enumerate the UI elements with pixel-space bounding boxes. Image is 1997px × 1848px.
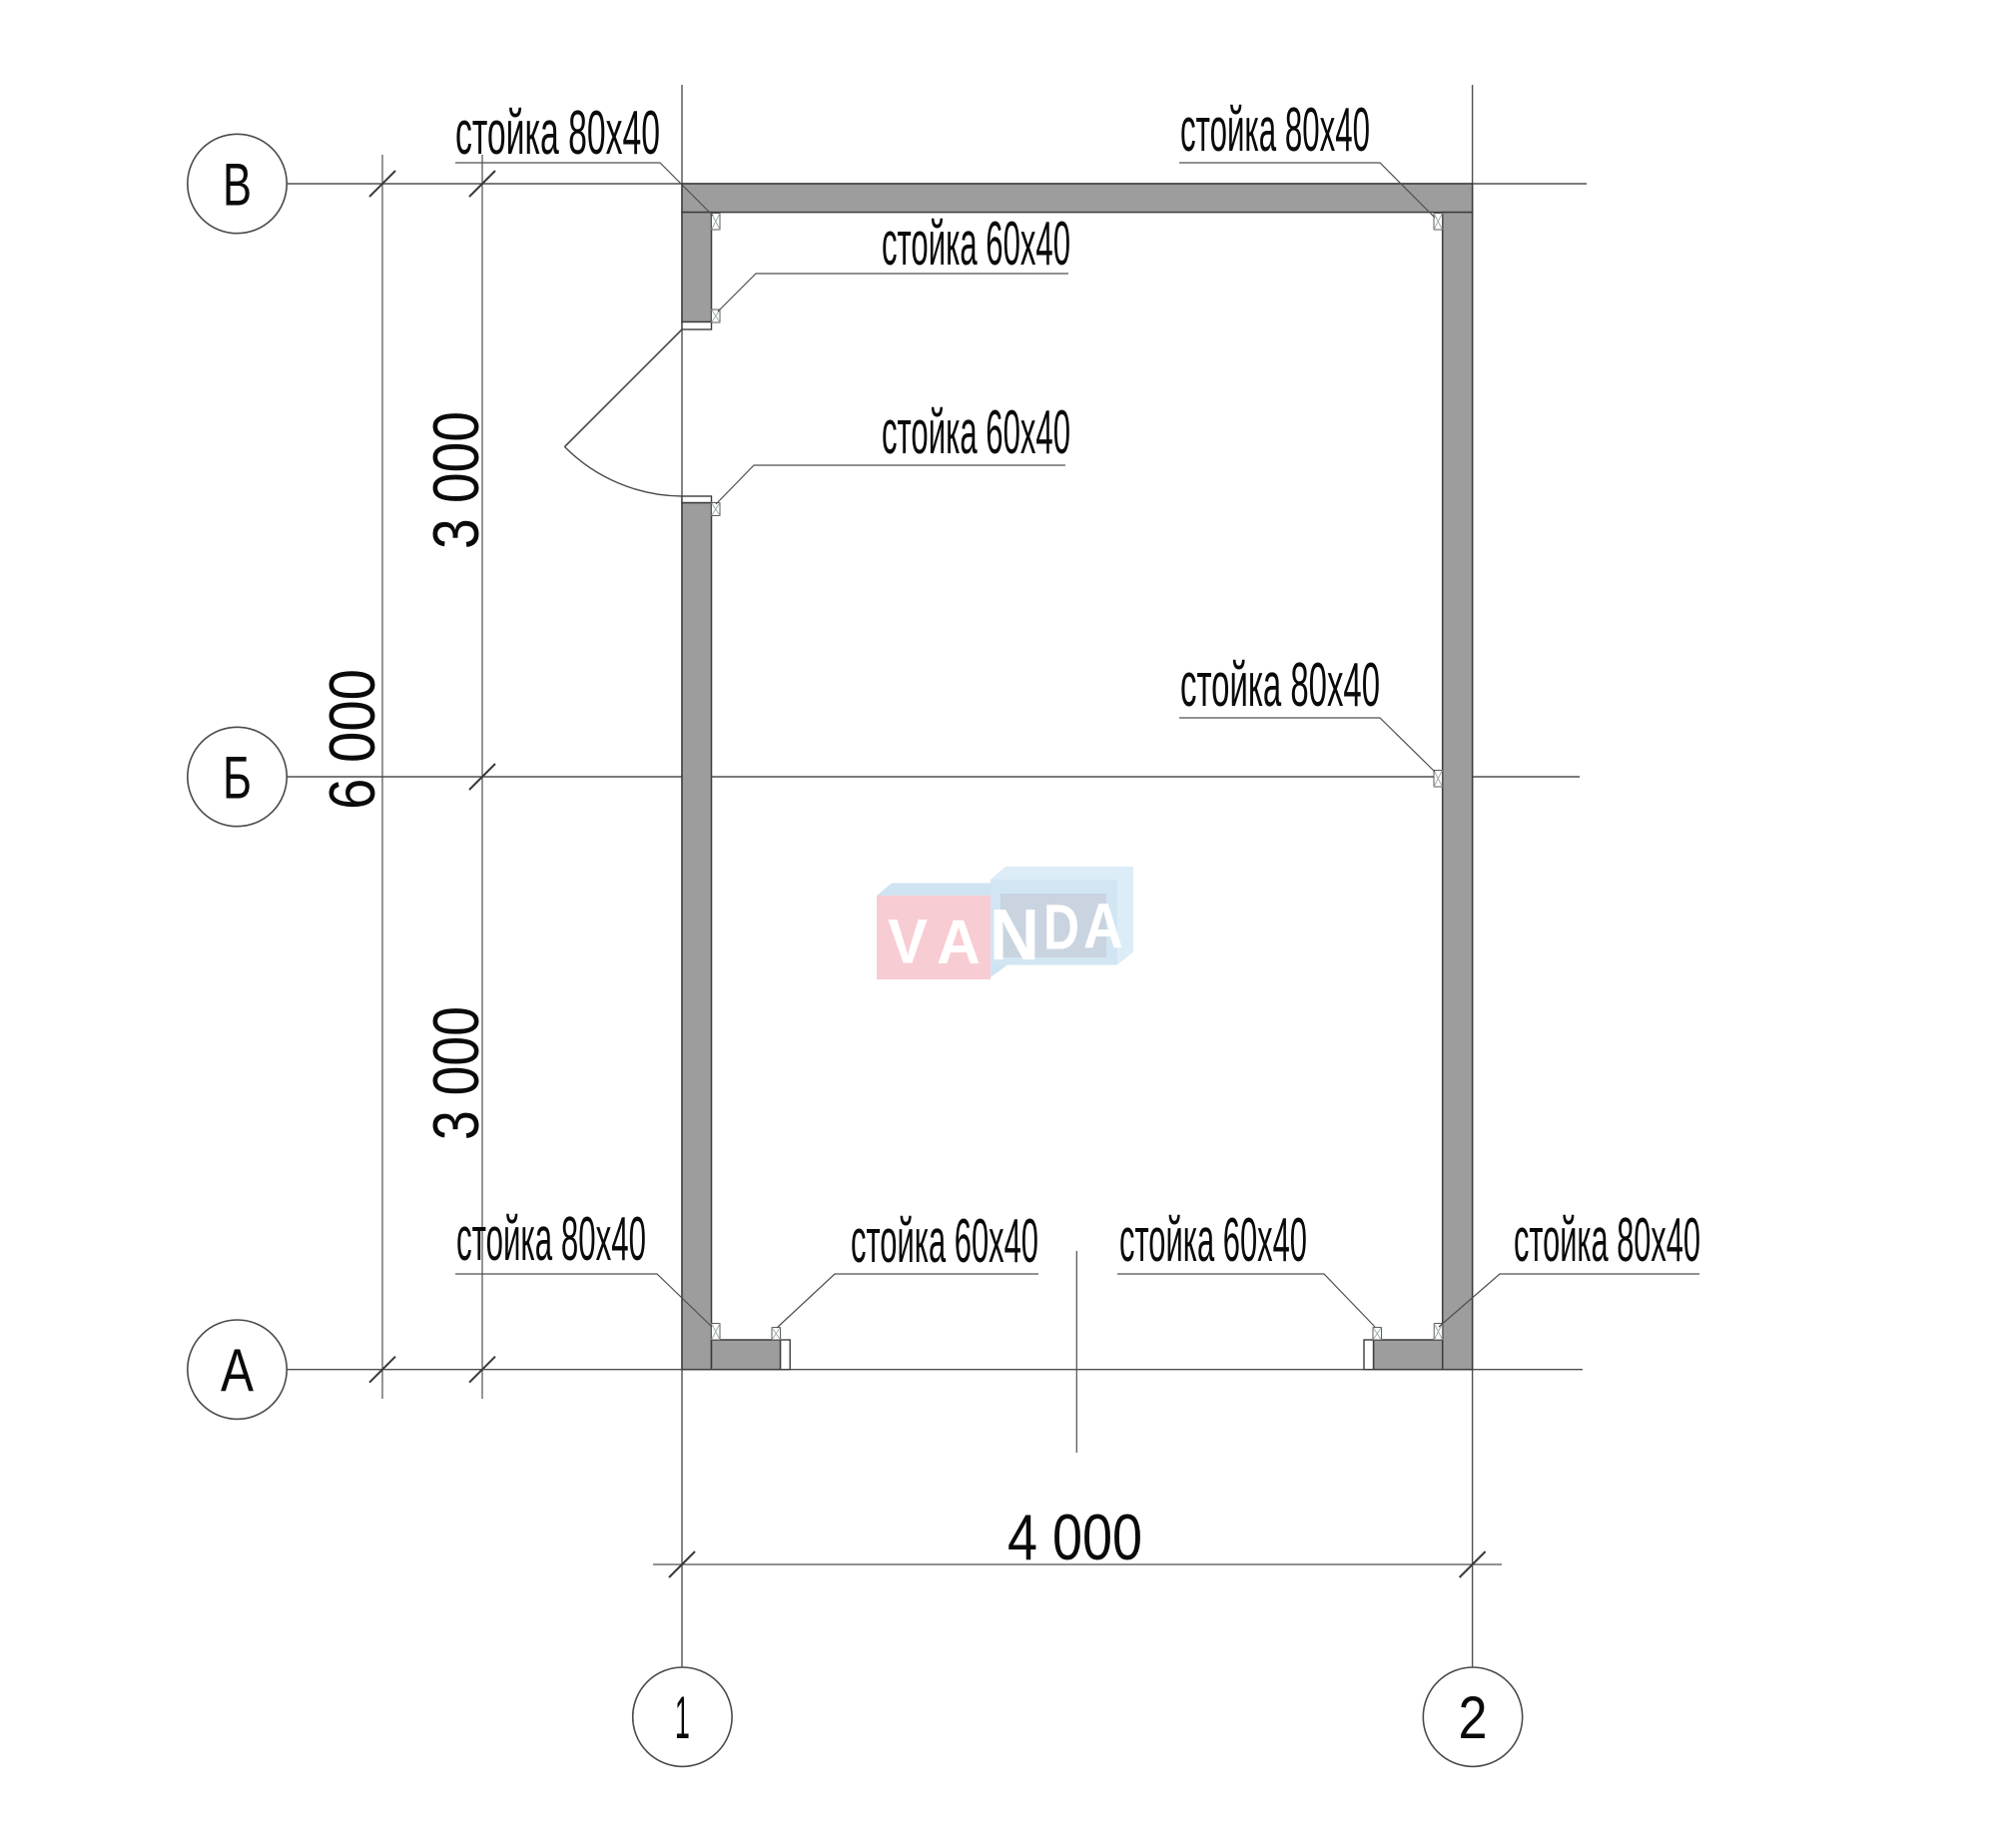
svg-text:А: А [221,1337,254,1404]
svg-text:3 000: 3 000 [419,1006,492,1140]
svg-text:A: A [1083,891,1123,962]
svg-text:6 000: 6 000 [316,669,388,810]
svg-text:стойка 80х40: стойка 80х40 [455,99,660,168]
svg-text:стойка 60х40: стойка 60х40 [1119,1206,1307,1275]
svg-text:стойка 60х40: стойка 60х40 [851,1207,1038,1276]
svg-text:стойка 80х40: стойка 80х40 [1180,96,1370,165]
svg-text:A: A [937,908,981,977]
svg-text:V: V [888,908,928,977]
svg-text:В: В [223,152,252,219]
svg-text:стойка 80х40: стойка 80х40 [1180,651,1380,720]
svg-text:стойка 80х40: стойка 80х40 [456,1205,646,1274]
svg-text:3 000: 3 000 [419,411,492,549]
svg-text:стойка 80х40: стойка 80х40 [1514,1206,1700,1275]
svg-text:Б: Б [223,745,252,812]
svg-text:1: 1 [675,1684,690,1751]
svg-text:2: 2 [1459,1684,1488,1751]
svg-text:стойка 60х40: стойка 60х40 [882,210,1070,279]
svg-text:стойка 60х40: стойка 60х40 [882,398,1070,467]
svg-text:4 000: 4 000 [1007,1501,1142,1573]
svg-text:N: N [990,896,1039,975]
svg-text:D: D [1043,892,1079,963]
